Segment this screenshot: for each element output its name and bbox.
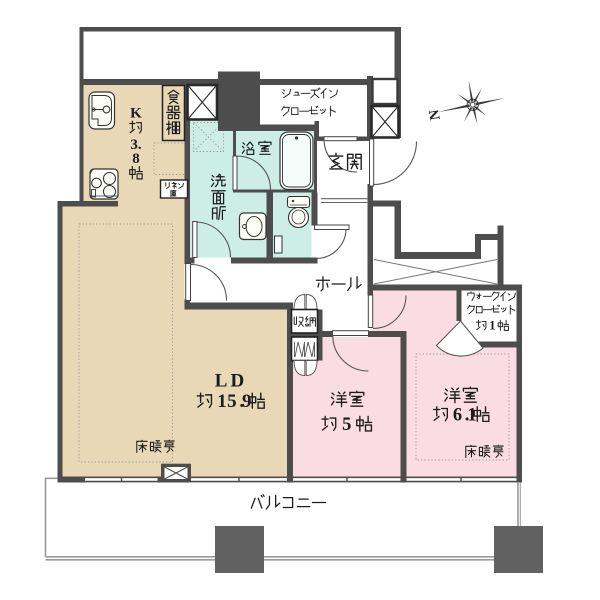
svg-text:6: 6 bbox=[453, 405, 462, 425]
svg-text:1: 1 bbox=[467, 405, 476, 425]
svg-text:1: 1 bbox=[217, 391, 227, 412]
svg-text:9: 9 bbox=[242, 391, 252, 412]
svg-text:LD: LD bbox=[215, 371, 247, 392]
svg-text:5: 5 bbox=[227, 391, 237, 412]
svg-text:K: K bbox=[130, 106, 142, 122]
svg-text:5: 5 bbox=[342, 415, 351, 435]
svg-text:8: 8 bbox=[132, 151, 140, 167]
svg-text:1: 1 bbox=[489, 319, 495, 333]
